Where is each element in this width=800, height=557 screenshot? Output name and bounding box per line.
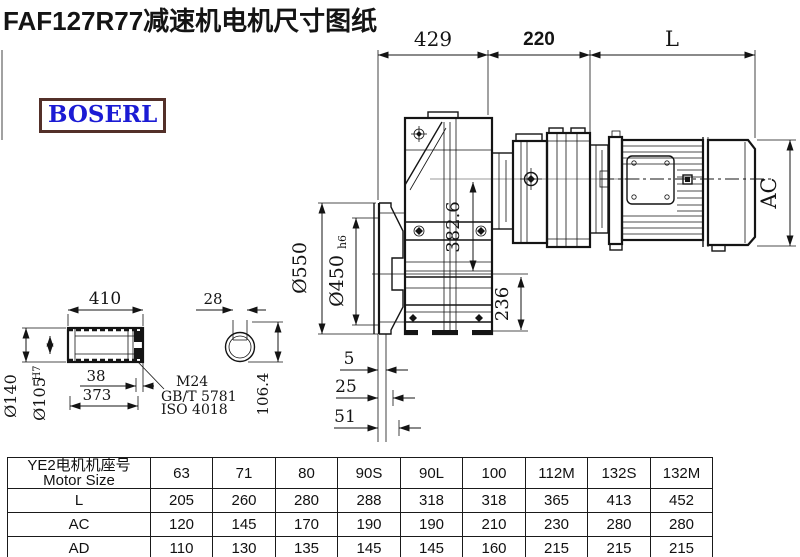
table-cell: 413 — [588, 489, 651, 513]
shaft-detail: 410 Ø140 Ø105 H7 38 373 M24 — [1, 289, 237, 421]
header-motor-size: YE2电机机座号 Motor Size — [8, 458, 151, 489]
flange-section: Ø550 Ø450 h6 — [289, 203, 405, 334]
bolt-icon — [409, 314, 483, 322]
size-col-header: 100 — [463, 458, 526, 489]
size-col-header: 132M — [651, 458, 713, 489]
dim-105-label: Ø105 — [30, 377, 49, 421]
center-mark-icon — [520, 168, 542, 190]
size-col-header: 63 — [151, 458, 213, 489]
row-label: AC — [8, 513, 151, 537]
table-cell: 288 — [338, 489, 401, 513]
dim-51-label: 51 — [334, 407, 356, 427]
table-cell: 365 — [526, 489, 588, 513]
dim-AC-label: AC — [757, 177, 781, 209]
motor-outline — [609, 131, 755, 251]
table-cell: 280 — [276, 489, 338, 513]
size-col-header: 80 — [276, 458, 338, 489]
size-col-header: 71 — [213, 458, 276, 489]
header-line2: Motor Size — [8, 473, 150, 488]
motor-size-table: YE2电机机座号 Motor Size 63 71 80 90S 90L 100… — [7, 457, 713, 557]
table-cell: 135 — [276, 537, 338, 557]
table-cell: 145 — [401, 537, 463, 557]
size-col-header: 90S — [338, 458, 401, 489]
header-line1: YE2电机机座号 — [8, 458, 150, 473]
dim-140-label: Ø140 — [1, 374, 20, 418]
table-cell: 452 — [651, 489, 713, 513]
table-cell: 280 — [588, 513, 651, 537]
dim-28-label: 28 — [203, 290, 222, 308]
offset-dimensions: 5 25 51 — [334, 334, 421, 442]
table-row: AD 110 130 135 145 145 160 215 215 215 — [8, 537, 713, 557]
size-col-header: 90L — [401, 458, 463, 489]
dim-220-label: 220 — [523, 29, 555, 50]
table-cell: 110 — [151, 537, 213, 557]
table-cell: 215 — [526, 537, 588, 557]
table-cell: 210 — [463, 513, 526, 537]
top-dimensions: 429 220 L — [378, 27, 755, 200]
callout-m24-label: M24 — [176, 374, 208, 390]
dim-38-label: 38 — [86, 367, 105, 385]
dim-450-suffix-label: h6 — [336, 235, 349, 249]
drawing-sheet: FAF127R77减速机电机尺寸图纸 BOSERL 429 220 L — [0, 0, 800, 557]
dim-429-label: 429 — [414, 27, 452, 51]
dim-L-label: L — [665, 27, 679, 51]
row-label: AD — [8, 537, 151, 557]
bolt-icon — [411, 126, 427, 142]
dim-373-label: 373 — [83, 386, 112, 404]
table-cell: 145 — [213, 513, 276, 537]
table-cell: 205 — [151, 489, 213, 513]
dim-382-label: 382.6 — [443, 201, 464, 253]
table-row: AC 120 145 170 190 190 210 230 280 280 — [8, 513, 713, 537]
table-cell: 190 — [338, 513, 401, 537]
table-cell: 130 — [213, 537, 276, 557]
size-col-header: 112M — [526, 458, 588, 489]
table-cell: 120 — [151, 513, 213, 537]
row-label: L — [8, 489, 151, 513]
table-cell: 215 — [588, 537, 651, 557]
table-header-row: YE2电机机座号 Motor Size 63 71 80 90S 90L 100… — [8, 458, 713, 489]
dim-105-sup-label: H7 — [32, 365, 43, 380]
table-cell: 318 — [401, 489, 463, 513]
table-cell: 215 — [651, 537, 713, 557]
table-cell: 160 — [463, 537, 526, 557]
table-cell: 318 — [463, 489, 526, 513]
dim-25-label: 25 — [335, 377, 357, 397]
table-cell: 170 — [276, 513, 338, 537]
dim-410-label: 410 — [89, 289, 121, 309]
table-cell: 145 — [338, 537, 401, 557]
technical-drawing: 429 220 L — [0, 0, 800, 457]
input-housing — [492, 128, 609, 247]
center-lines — [372, 179, 774, 274]
table-cell: 280 — [651, 513, 713, 537]
ac-dimension: AC — [757, 140, 796, 246]
dim-1064-label: 106.4 — [254, 373, 272, 416]
table-row: L 205 260 280 288 318 318 365 413 452 — [8, 489, 713, 513]
table-cell: 230 — [526, 513, 588, 537]
size-col-header: 132S — [588, 458, 651, 489]
table-cell: 190 — [401, 513, 463, 537]
dim-450-label: Ø450 — [326, 255, 348, 307]
dim-236-label: 236 — [492, 287, 513, 321]
dim-550-label: Ø550 — [289, 242, 311, 294]
table-cell: 260 — [213, 489, 276, 513]
callout-iso-label: ISO 4018 — [161, 402, 228, 418]
dim-5-label: 5 — [344, 349, 355, 369]
